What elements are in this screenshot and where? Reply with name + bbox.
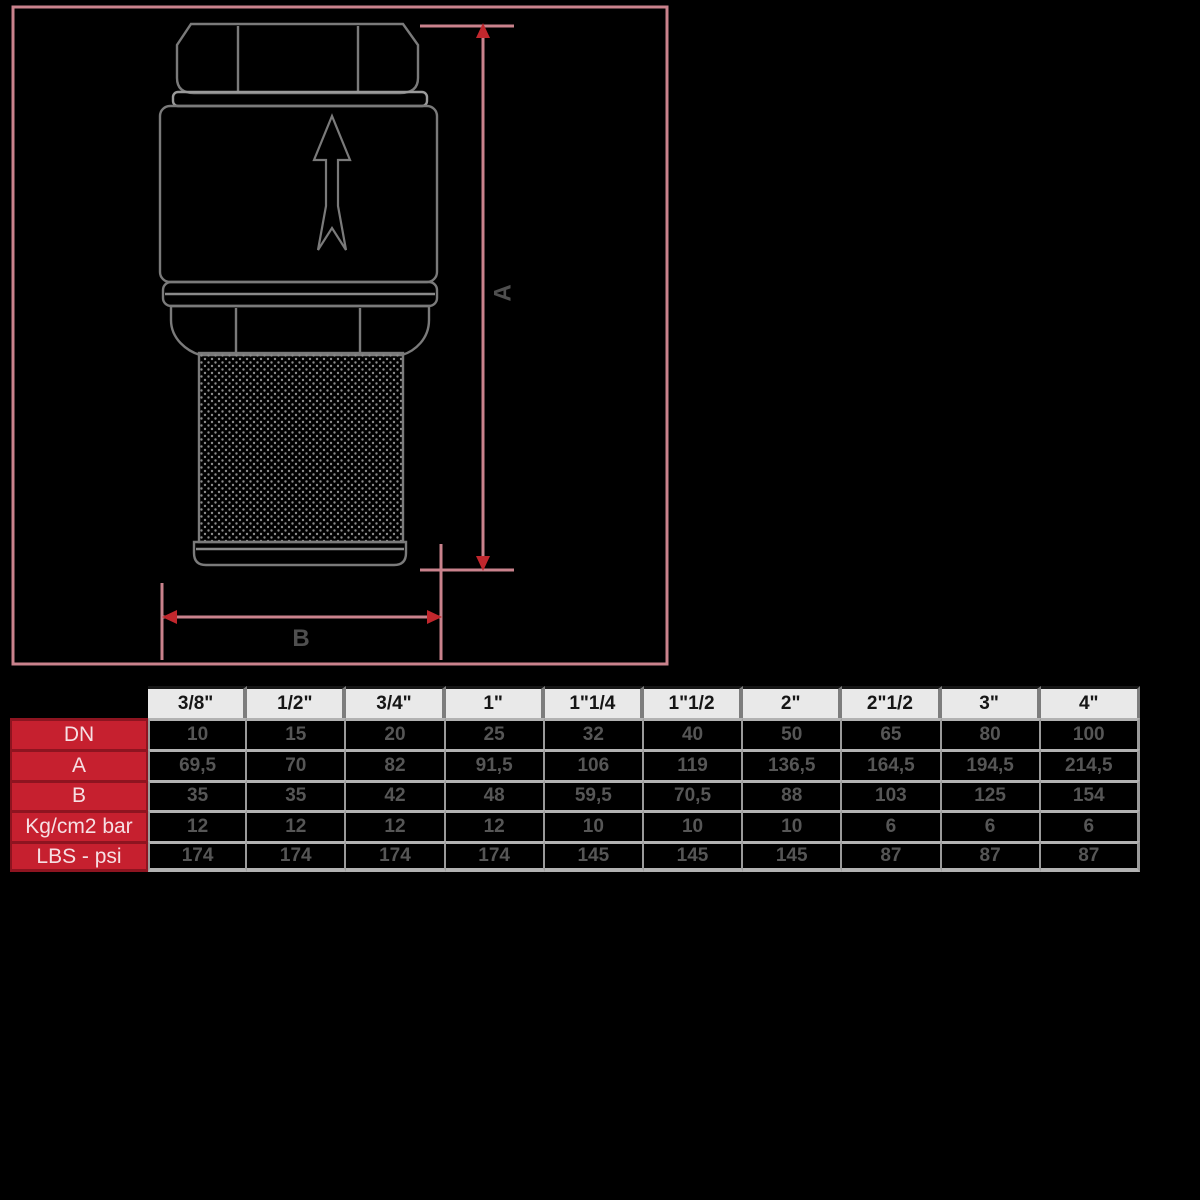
value-cell-1-2: 82: [346, 749, 445, 780]
value-cell-0-3: 25: [446, 718, 545, 749]
value-cell-4-6: 145: [743, 841, 842, 872]
value-cell-0-0: 10: [148, 718, 247, 749]
value-cell-2-9: 154: [1041, 780, 1140, 811]
value-cell-2-4: 59,5: [545, 780, 644, 811]
valve-technical-drawing: A B: [0, 0, 680, 680]
size-header-6: 2": [743, 686, 842, 718]
value-cell-3-9: 6: [1041, 810, 1140, 841]
row-label-3: Kg/cm2 bar: [10, 810, 148, 841]
value-cell-2-1: 35: [247, 780, 346, 811]
value-cell-0-7: 65: [842, 718, 941, 749]
value-cell-3-5: 10: [644, 810, 743, 841]
spec-table: 3/8"1/2"3/4"1"1"1/41"1/22"2"1/23"4"DN101…: [10, 686, 1140, 872]
value-cell-2-6: 88: [743, 780, 842, 811]
value-cell-3-4: 10: [545, 810, 644, 841]
dim-a-label: A: [489, 284, 516, 301]
flow-direction-arrow-icon: [314, 116, 350, 250]
value-cell-4-0: 174: [148, 841, 247, 872]
size-header-5: 1"1/2: [644, 686, 743, 718]
table-corner-cell: [10, 686, 148, 718]
drawing-svg: A B: [0, 0, 680, 680]
value-cell-4-8: 87: [942, 841, 1041, 872]
top-hex-nut: [177, 24, 418, 93]
value-cell-4-3: 174: [446, 841, 545, 872]
value-cell-2-3: 48: [446, 780, 545, 811]
size-header-8: 3": [942, 686, 1041, 718]
size-header-9: 4": [1041, 686, 1140, 718]
value-cell-1-4: 106: [545, 749, 644, 780]
value-cell-2-8: 125: [942, 780, 1041, 811]
foot-valve-outline: [160, 24, 437, 565]
value-cell-3-2: 12: [346, 810, 445, 841]
row-label-0: DN: [10, 718, 148, 749]
value-cell-0-5: 40: [644, 718, 743, 749]
valve-body: [160, 106, 437, 282]
value-cell-4-9: 87: [1041, 841, 1140, 872]
value-cell-3-3: 12: [446, 810, 545, 841]
size-header-2: 3/4": [346, 686, 445, 718]
value-cell-2-0: 35: [148, 780, 247, 811]
dim-b-label: B: [292, 625, 309, 652]
size-header-0: 3/8": [148, 686, 247, 718]
value-cell-0-4: 32: [545, 718, 644, 749]
value-cell-0-8: 80: [942, 718, 1041, 749]
value-cell-4-1: 174: [247, 841, 346, 872]
value-cell-3-7: 6: [842, 810, 941, 841]
size-header-4: 1"1/4: [545, 686, 644, 718]
size-header-3: 1": [446, 686, 545, 718]
value-cell-3-8: 6: [942, 810, 1041, 841]
value-cell-1-0: 69,5: [148, 749, 247, 780]
value-cell-1-3: 91,5: [446, 749, 545, 780]
value-cell-0-2: 20: [346, 718, 445, 749]
value-cell-0-1: 15: [247, 718, 346, 749]
size-header-7: 2"1/2: [842, 686, 941, 718]
value-cell-3-6: 10: [743, 810, 842, 841]
size-header-1: 1/2": [247, 686, 346, 718]
value-cell-1-6: 136,5: [743, 749, 842, 780]
value-cell-2-7: 103: [842, 780, 941, 811]
row-label-2: B: [10, 780, 148, 811]
value-cell-1-8: 194,5: [942, 749, 1041, 780]
bottom-hex-nut: [171, 306, 429, 355]
value-cell-4-2: 174: [346, 841, 445, 872]
value-cell-3-1: 12: [247, 810, 346, 841]
value-cell-1-9: 214,5: [1041, 749, 1140, 780]
value-cell-4-5: 145: [644, 841, 743, 872]
value-cell-0-6: 50: [743, 718, 842, 749]
value-cell-2-2: 42: [346, 780, 445, 811]
value-cell-1-5: 119: [644, 749, 743, 780]
arrowhead-left-icon: [162, 610, 177, 624]
bottom-cap: [194, 542, 406, 565]
value-cell-1-1: 70: [247, 749, 346, 780]
value-cell-1-7: 164,5: [842, 749, 941, 780]
value-cell-4-4: 145: [545, 841, 644, 872]
value-cell-2-5: 70,5: [644, 780, 743, 811]
row-label-4: LBS - psi: [10, 841, 148, 872]
value-cell-0-9: 100: [1041, 718, 1140, 749]
value-cell-4-7: 87: [842, 841, 941, 872]
row-label-1: A: [10, 749, 148, 780]
strainer-mesh: [199, 353, 403, 542]
value-cell-3-0: 12: [148, 810, 247, 841]
